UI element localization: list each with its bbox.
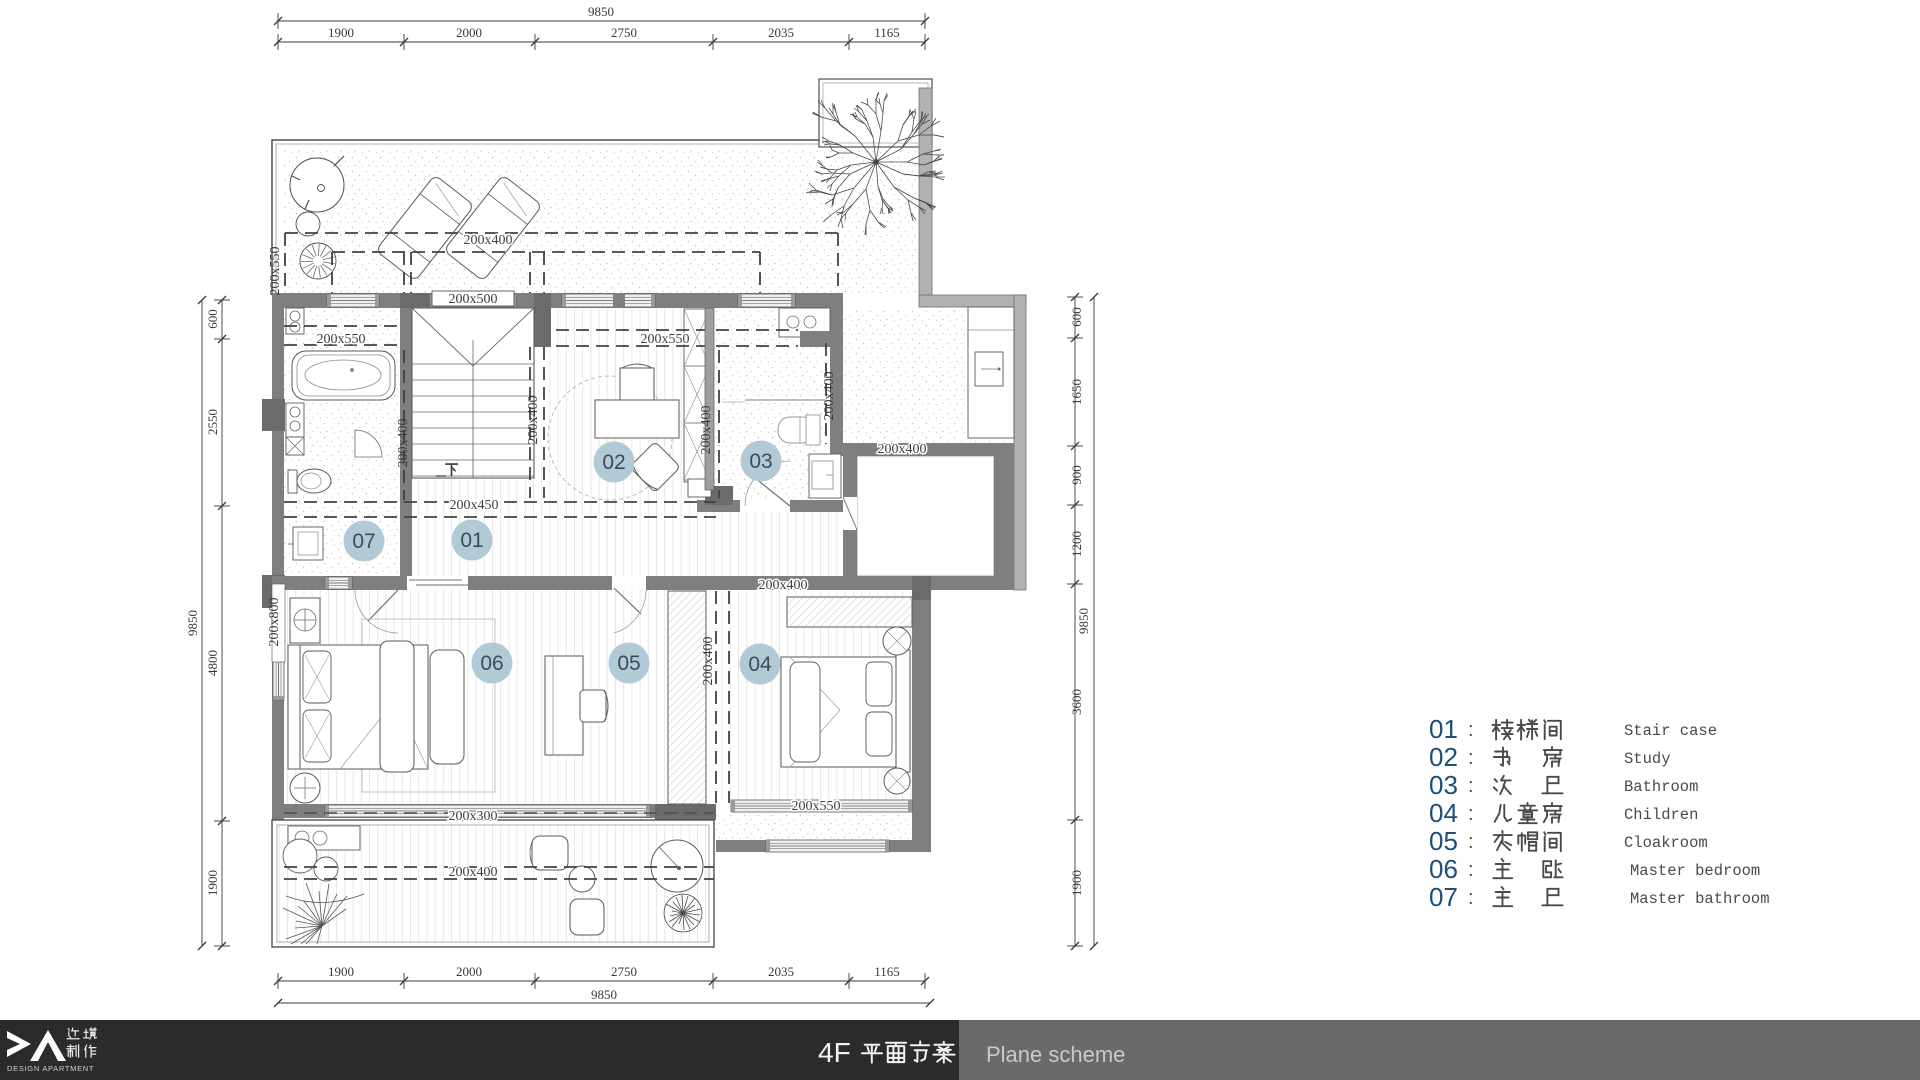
svg-text:04: 04: [748, 653, 772, 676]
svg-text:2035: 2035: [768, 964, 794, 979]
svg-text:DESIGN APARTMENT: DESIGN APARTMENT: [7, 1064, 94, 1073]
svg-text:1165: 1165: [874, 25, 900, 40]
svg-text:200x400: 200x400: [701, 637, 716, 686]
svg-text:Stair case: Stair case: [1624, 722, 1717, 740]
svg-text:200x550: 200x550: [792, 799, 841, 814]
svg-text:9850: 9850: [591, 987, 617, 1002]
svg-text::: :: [1468, 775, 1474, 797]
svg-text:1200: 1200: [1069, 531, 1084, 557]
svg-text:1900: 1900: [328, 964, 354, 979]
svg-text::: :: [1468, 887, 1474, 909]
svg-text:06: 06: [1429, 854, 1458, 884]
svg-text:200x400: 200x400: [822, 372, 837, 421]
svg-text:200x500: 200x500: [449, 292, 498, 307]
svg-text:04: 04: [1429, 798, 1458, 828]
svg-text:2750: 2750: [611, 25, 637, 40]
svg-text:1650: 1650: [1069, 379, 1084, 405]
svg-text:Master bathroom: Master bathroom: [1630, 890, 1770, 908]
svg-text:1165: 1165: [874, 964, 900, 979]
svg-text::: :: [1468, 719, 1474, 741]
svg-text:2035: 2035: [768, 25, 794, 40]
svg-text:200x550: 200x550: [268, 247, 283, 296]
svg-text:200x400: 200x400: [699, 406, 714, 455]
svg-text:Children: Children: [1624, 806, 1698, 824]
svg-text:2000: 2000: [456, 964, 482, 979]
svg-text:1900: 1900: [328, 25, 354, 40]
svg-text:1900: 1900: [205, 870, 220, 896]
svg-text:9850: 9850: [185, 610, 200, 636]
svg-text:200x400: 200x400: [396, 419, 411, 468]
svg-text:9850: 9850: [1076, 608, 1091, 634]
svg-text::: :: [1468, 747, 1474, 769]
svg-text::: :: [1468, 803, 1474, 825]
svg-text:4F: 4F: [818, 1037, 851, 1068]
svg-text:200x400: 200x400: [464, 233, 513, 248]
svg-text:200x550: 200x550: [641, 332, 690, 347]
svg-text:200x400: 200x400: [449, 865, 498, 880]
svg-text:600: 600: [205, 309, 220, 329]
svg-text:02: 02: [602, 451, 625, 474]
svg-text:01: 01: [460, 529, 483, 552]
svg-text:Plane scheme: Plane scheme: [986, 1042, 1125, 1067]
svg-text:05: 05: [1429, 826, 1458, 856]
svg-text:03: 03: [1429, 770, 1458, 800]
svg-text:07: 07: [352, 530, 375, 553]
svg-text:1900: 1900: [1069, 870, 1084, 896]
svg-text:9850: 9850: [588, 4, 614, 19]
svg-text:200x800: 200x800: [267, 598, 282, 647]
svg-text:01: 01: [1429, 714, 1458, 744]
svg-text:06: 06: [480, 652, 503, 675]
svg-text:200x550: 200x550: [317, 332, 366, 347]
svg-text:Master bedroom: Master bedroom: [1630, 862, 1760, 880]
svg-text:07: 07: [1429, 882, 1458, 912]
svg-text:2750: 2750: [611, 964, 637, 979]
svg-text:Bathroom: Bathroom: [1624, 778, 1698, 796]
svg-text:2550: 2550: [205, 409, 220, 435]
svg-text:200x450: 200x450: [450, 498, 499, 513]
svg-text::: :: [1468, 859, 1474, 881]
svg-text:900: 900: [1069, 465, 1084, 485]
svg-text:02: 02: [1429, 742, 1458, 772]
svg-text:Cloakroom: Cloakroom: [1624, 834, 1708, 852]
svg-text:05: 05: [617, 652, 640, 675]
svg-text:200x400: 200x400: [759, 578, 808, 593]
svg-text:200x400: 200x400: [526, 396, 541, 445]
svg-text:4800: 4800: [205, 650, 220, 676]
svg-text:600: 600: [1069, 307, 1084, 327]
svg-text:200x300: 200x300: [449, 809, 498, 824]
svg-text:2000: 2000: [456, 25, 482, 40]
svg-text:03: 03: [749, 450, 772, 473]
svg-text:Study: Study: [1624, 750, 1671, 768]
svg-text:3600: 3600: [1069, 689, 1084, 715]
svg-text::: :: [1468, 831, 1474, 853]
svg-text:200x400: 200x400: [878, 442, 927, 457]
